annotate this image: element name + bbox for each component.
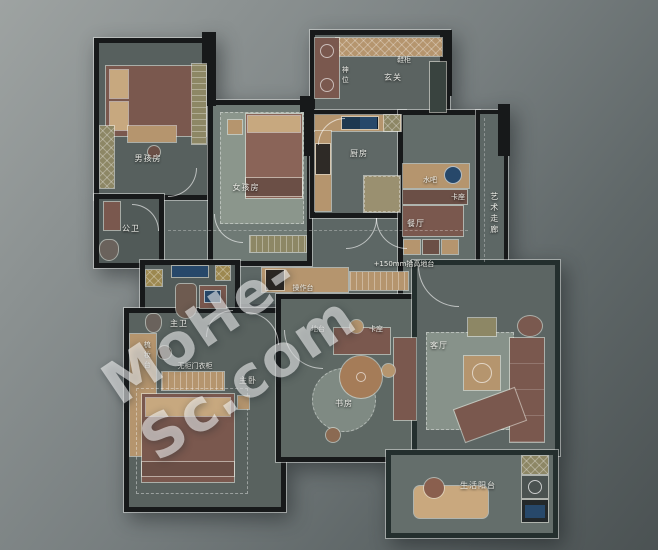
entry-label: 玄关 <box>384 73 402 83</box>
girl-room-nightstand <box>228 120 242 134</box>
master-bed-pillows <box>146 398 230 416</box>
master-toilet <box>146 314 161 332</box>
boy-room-wardrobe <box>192 64 206 144</box>
boy-room-desk <box>128 126 176 142</box>
floor-plan-image: 男孩房 女孩房 玄关 鞋柜 神位 厨房 水吧 卡座 餐厅 艺术走廊 公卫 主卫 … <box>0 0 658 550</box>
nightstand <box>238 396 249 409</box>
dining-chair <box>423 240 439 254</box>
dining-chair <box>442 240 458 254</box>
study-table-center <box>356 372 366 382</box>
art-corridor-label: 艺术走廊 <box>489 192 499 236</box>
master-bedroom-label: 主卧 <box>239 376 257 386</box>
laundry-basket <box>522 456 548 474</box>
apartment-floor-plan: 男孩房 女孩房 玄关 鞋柜 神位 厨房 水吧 卡座 餐厅 艺术走廊 公卫 主卫 … <box>0 0 658 550</box>
boy-room-pillow <box>110 70 128 98</box>
kitchen-hatch-cabinet <box>384 115 400 131</box>
altar-symbol-icon <box>320 78 334 92</box>
lounger-pillow <box>424 478 444 498</box>
master-bath-label: 主卫 <box>170 319 188 329</box>
boy-room-cabinet <box>100 126 114 188</box>
coffee-table-center <box>472 363 492 383</box>
tv-console <box>468 318 496 336</box>
living-room-label: 客厅 <box>430 341 448 351</box>
kitchen-pantry-cabinet <box>364 176 400 212</box>
platform-note-label: +150mm抬高地台 <box>374 260 435 268</box>
guest-bath-label: 公卫 <box>122 224 140 234</box>
living-round-stool <box>518 316 542 336</box>
altar-label: 神位 <box>341 66 349 86</box>
hall-counter-cooktop <box>266 270 284 290</box>
girl-room-pillow <box>248 116 300 132</box>
girl-room-wardrobe <box>250 236 306 252</box>
study-desk-chair <box>350 320 363 333</box>
service-balcony-label: 生活阳台 <box>460 481 496 491</box>
guide-line <box>168 230 468 231</box>
shower-tile <box>216 266 230 280</box>
water-bar-sink <box>444 166 462 184</box>
wall-segment <box>498 104 510 156</box>
boy-room-label: 男孩房 <box>135 154 162 164</box>
laundry-sink <box>528 480 542 494</box>
guide-line <box>484 118 485 262</box>
open-wardrobe-label: 无柜门衣柜 <box>178 362 213 370</box>
dining-booth-label: 卡座 <box>451 193 465 201</box>
master-bath-sink <box>204 290 221 303</box>
water-bar-label: 水吧 <box>423 176 437 184</box>
dressing-table-label: 梳妆台 <box>143 341 151 371</box>
study-label: 书房 <box>335 399 353 409</box>
study-booth-label: 卡座 <box>369 325 383 333</box>
study-stool <box>382 364 395 377</box>
kitchen-label: 厨房 <box>350 149 368 159</box>
study-stool <box>326 428 340 442</box>
dressing-stool <box>158 346 171 359</box>
hall-counter-shelf <box>350 272 408 290</box>
kitchen-sink <box>342 117 378 129</box>
girl-room-label: 女孩房 <box>233 183 260 193</box>
master-bed-runner <box>142 462 234 476</box>
entry-tall-cabinet <box>430 62 446 112</box>
dining-label: 餐厅 <box>407 219 425 229</box>
platform-label: 地台 <box>311 325 325 333</box>
guest-bath-vanity <box>104 202 120 230</box>
shower-tile <box>146 270 162 286</box>
guest-toilet <box>100 240 118 260</box>
counter-label: 操作台 <box>293 284 314 292</box>
washing-machine-door <box>525 505 545 518</box>
bathtub <box>176 284 196 318</box>
stove <box>316 144 330 174</box>
entry-shoe-cabinet <box>336 38 442 56</box>
altar-symbol-icon <box>320 44 334 58</box>
tv-bookshelf-wall <box>394 338 416 420</box>
shoe-cabinet-label: 鞋柜 <box>397 56 411 64</box>
master-bath-trough-sink <box>172 266 208 277</box>
